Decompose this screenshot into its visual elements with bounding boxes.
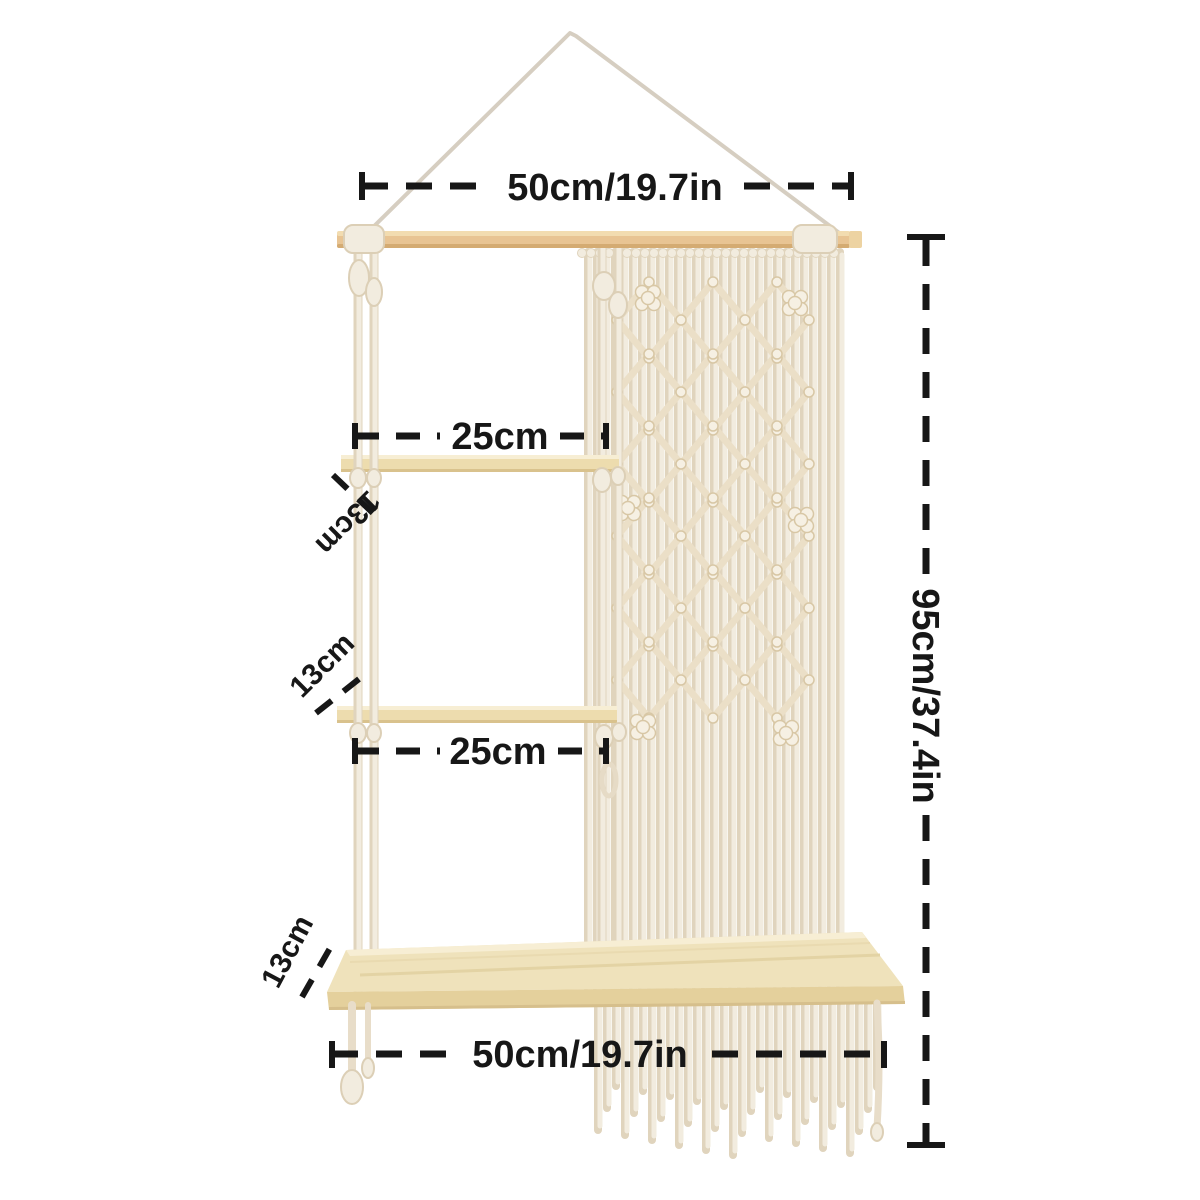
lattice-knot bbox=[804, 675, 814, 685]
lattice-knot bbox=[804, 387, 814, 397]
dim-upper-shelf-width: 25cm bbox=[355, 416, 606, 458]
rod-knot bbox=[758, 249, 767, 258]
rod-knot bbox=[767, 249, 776, 258]
lattice-knot bbox=[772, 421, 782, 431]
flower-knot bbox=[642, 292, 655, 305]
macrame-cords bbox=[590, 255, 842, 998]
dim-upper-shelf-width-label: 25cm bbox=[451, 416, 548, 458]
lattice-knot bbox=[708, 421, 718, 431]
lattice-knot bbox=[772, 277, 782, 287]
lattice-knot bbox=[676, 387, 686, 397]
rod-end-cap bbox=[849, 231, 862, 248]
rod-knot bbox=[785, 249, 794, 258]
lattice-knot bbox=[644, 637, 654, 647]
rod-knot bbox=[659, 249, 668, 258]
lattice-knot bbox=[708, 713, 718, 723]
rod-knot bbox=[740, 249, 749, 258]
lattice-knot bbox=[772, 565, 782, 575]
rod-right-wrap-knot bbox=[793, 225, 837, 253]
dim-total-height: 95cm/37.4in bbox=[904, 237, 946, 1145]
rod-knot bbox=[650, 249, 659, 258]
lattice-knot bbox=[676, 603, 686, 613]
lattice-knot bbox=[740, 459, 750, 469]
rod-knot bbox=[641, 249, 650, 258]
middle-shelf bbox=[337, 706, 617, 723]
dim-middle-shelf-width-label: 25cm bbox=[449, 731, 546, 773]
rod-knot bbox=[677, 249, 686, 258]
dim-top-width-label: 50cm/19.7in bbox=[507, 167, 722, 209]
lattice-knot bbox=[644, 421, 654, 431]
lattice-knot bbox=[644, 565, 654, 575]
lattice-knot bbox=[676, 459, 686, 469]
lattice-knot bbox=[772, 637, 782, 647]
dim-middle-shelf-depth: 13cm bbox=[283, 626, 361, 713]
rod-knot bbox=[587, 249, 596, 258]
macrame-shelf-illustration: 50cm/19.7in 25cm 13cm 13cm 25cm 13cm 50c… bbox=[0, 0, 1200, 1200]
lattice-knot bbox=[676, 675, 686, 685]
rod-left-wrap-knot bbox=[344, 225, 384, 253]
flower-knot bbox=[780, 727, 793, 740]
left-ropes bbox=[349, 248, 382, 995]
rod-knot bbox=[686, 249, 695, 258]
rod-knot bbox=[668, 249, 677, 258]
rod-knot bbox=[578, 249, 587, 258]
dim-total-height-label: 95cm/37.4in bbox=[904, 588, 946, 803]
lattice-knot bbox=[676, 531, 686, 541]
rod-knot bbox=[704, 249, 713, 258]
lattice-knot bbox=[740, 315, 750, 325]
lattice-knot bbox=[708, 493, 718, 503]
lattice-knot bbox=[772, 349, 782, 359]
flower-knot bbox=[795, 514, 808, 527]
lattice-knot bbox=[644, 493, 654, 503]
lattice-knot bbox=[772, 493, 782, 503]
lattice-knot bbox=[708, 277, 718, 287]
dim-middle-shelf-depth-label: 13cm bbox=[283, 626, 361, 704]
lattice-knot bbox=[740, 387, 750, 397]
bottom-shelf bbox=[327, 932, 905, 1010]
lattice-knot bbox=[644, 349, 654, 359]
flower-knot bbox=[622, 502, 635, 515]
rod-knot bbox=[623, 249, 632, 258]
lattice-knot bbox=[804, 603, 814, 613]
flower-knot bbox=[637, 721, 650, 734]
dim-middle-shelf-width: 25cm bbox=[355, 731, 606, 773]
lattice-knot bbox=[740, 603, 750, 613]
lattice-knot bbox=[708, 637, 718, 647]
flower-knot bbox=[789, 297, 802, 310]
rod-knot bbox=[722, 249, 731, 258]
rod-knot bbox=[713, 249, 722, 258]
rod-knot bbox=[695, 249, 704, 258]
lattice-knot bbox=[804, 459, 814, 469]
product-dimension-diagram: 50cm/19.7in 25cm 13cm 13cm 25cm 13cm 50c… bbox=[0, 0, 1200, 1200]
rod-knot bbox=[749, 249, 758, 258]
lattice-knot bbox=[676, 315, 686, 325]
lattice-knot bbox=[740, 675, 750, 685]
lattice-knot bbox=[740, 531, 750, 541]
bottom-fringe bbox=[598, 1004, 879, 1155]
dim-bottom-width-label: 50cm/19.7in bbox=[472, 1034, 687, 1076]
lattice-knot bbox=[804, 315, 814, 325]
rod-knot bbox=[632, 249, 641, 258]
lattice-knot bbox=[708, 349, 718, 359]
dim-bottom-shelf-depth: 13cm bbox=[255, 910, 333, 997]
rod-knot bbox=[731, 249, 740, 258]
rod-knot bbox=[776, 249, 785, 258]
lattice-knot bbox=[708, 565, 718, 575]
